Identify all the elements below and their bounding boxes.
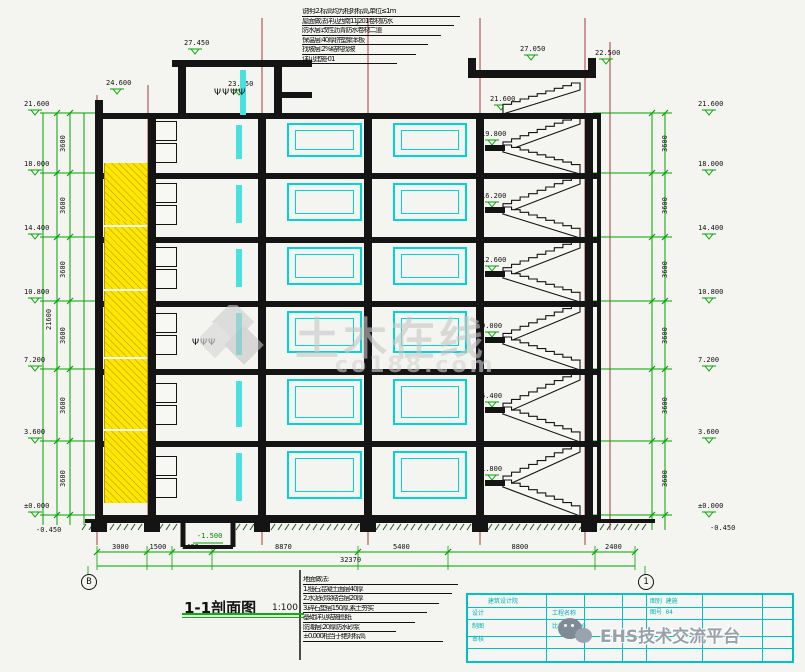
landing-box <box>155 269 177 289</box>
floor-slab <box>95 515 600 523</box>
parapet-left <box>95 100 103 115</box>
titleblock-line <box>546 595 547 661</box>
wall-window-strip <box>236 249 242 287</box>
elevation-left: ±0.000 <box>24 503 49 510</box>
elevation-marker-icon <box>702 110 716 115</box>
foundation <box>91 523 107 532</box>
elevation-marker-icon <box>524 55 538 60</box>
elevation-marker-icon <box>702 438 716 443</box>
icon-eye <box>571 624 574 627</box>
floor-slab <box>95 301 600 307</box>
ground-hatch <box>390 524 394 530</box>
ground-hatch <box>334 524 338 530</box>
ground-hatch <box>271 524 275 530</box>
dim-bottom-total: 32370 <box>340 557 361 564</box>
stair-shaft-highlight <box>104 431 148 503</box>
stair-shaft-highlight <box>104 163 148 221</box>
elevation-left: 7.200 <box>24 357 45 364</box>
ground-hatch <box>327 524 331 530</box>
landing-box <box>155 405 177 425</box>
elevation-left-below: -0.450 <box>36 527 61 534</box>
floor-slab <box>95 113 600 119</box>
elevation-stair-landing: 19.800 <box>481 131 506 138</box>
dim-floor-height: 3600 <box>60 470 67 487</box>
elevation-marker-icon <box>28 512 42 517</box>
ground-hatch <box>376 524 380 530</box>
ground-hatch <box>516 524 520 530</box>
stair-flight <box>503 145 580 174</box>
landing-box <box>155 383 177 403</box>
note-line: 详见建施-01 <box>302 56 397 65</box>
ground-hatch <box>558 524 562 530</box>
landing-box <box>155 143 177 163</box>
ground-hatch <box>292 524 296 530</box>
note-line: 保温层:40厚挤塑聚苯板 <box>302 37 428 46</box>
note-line: 说明:2.标高均为相对标高,单位≤1m <box>302 8 460 17</box>
ground-hatch <box>488 524 492 530</box>
window-inner <box>295 458 354 492</box>
landing-box <box>155 313 177 333</box>
note-line: 1.细石混凝土面层40厚 <box>303 586 452 595</box>
elevation-marker-icon <box>28 298 42 303</box>
elevation-marker-icon <box>188 49 202 54</box>
landing-box <box>155 456 177 476</box>
stair-landing <box>485 407 505 413</box>
foundation <box>144 523 160 532</box>
figure-symbols: ΨΨΨ <box>192 338 216 348</box>
icon-eye <box>564 624 567 627</box>
elevation-stair-landing: 12.600 <box>481 257 506 264</box>
landing-box <box>155 183 177 203</box>
landing-box <box>155 247 177 267</box>
column <box>476 113 484 523</box>
window <box>393 123 467 157</box>
titleblock-firm: 建筑设计院 <box>488 598 518 605</box>
ground-hatch <box>572 524 576 530</box>
bottom-notes-block: 地面做法:1.细石混凝土面层40厚2.水泥砂浆结合层20厚3.碎石垫层150厚,… <box>303 576 458 643</box>
stair-flight <box>503 407 580 442</box>
elevation-marker-icon <box>110 89 124 94</box>
elevation-marker-icon <box>28 170 42 175</box>
ground-hatch <box>236 524 240 530</box>
note-line: 地面做法: <box>303 576 458 585</box>
dim-bottom-value: 8800 <box>512 544 529 551</box>
stair-roof <box>468 70 596 78</box>
window-inner <box>401 458 459 492</box>
penthouse-wall <box>274 67 282 115</box>
window <box>287 451 362 499</box>
ground-hatch <box>166 524 170 530</box>
window-inner <box>295 386 354 418</box>
foundation <box>254 523 270 532</box>
ground-hatch <box>460 524 464 530</box>
ground-hatch <box>530 524 534 530</box>
elevation-left: 10.800 <box>24 289 49 296</box>
window <box>287 247 362 285</box>
dim-bottom-value: 1500 <box>150 544 167 551</box>
note-line: 防潮层:20厚防水砂浆 <box>303 624 396 633</box>
elevation-right: 7.200 <box>698 357 719 364</box>
dim-bottom-value: 8870 <box>275 544 292 551</box>
titleblock-sheet: 图别 建施 <box>650 598 678 605</box>
stair-flight <box>503 117 580 152</box>
dim-floor-height: 3600 <box>662 470 669 487</box>
dim-floor-height: 3600 <box>662 397 669 414</box>
stair-shaft-highlight <box>104 227 148 289</box>
stair-parapet <box>588 58 596 78</box>
dim-bottom-value: 3000 <box>112 544 129 551</box>
dim-bottom-value: 5400 <box>393 544 410 551</box>
ground-hatch <box>117 524 121 530</box>
wall-window-strip <box>236 313 242 355</box>
grid-bubble-B: B <box>81 574 97 590</box>
ground-hatch <box>131 524 135 530</box>
elevation-top: 27.050 <box>520 46 545 53</box>
ground-hatch <box>425 524 429 530</box>
window-inner <box>295 190 354 214</box>
stair-shaft-highlight <box>104 359 148 429</box>
stair-landing <box>485 337 505 343</box>
title-underline <box>182 613 304 615</box>
wechat-icon-small <box>575 628 592 643</box>
window-inner <box>401 190 459 214</box>
stair-flight <box>503 480 580 516</box>
elevation-left: 21.600 <box>24 101 49 108</box>
window-inner <box>295 318 354 346</box>
column <box>585 113 593 523</box>
stair-flight <box>503 207 580 238</box>
ground-hatch <box>124 524 128 530</box>
dim-floor-height: 3600 <box>662 327 669 344</box>
elevation-right: 3.600 <box>698 429 719 436</box>
elevation-stair-landing: 1.800 <box>481 466 502 473</box>
elevation-right: 21.600 <box>698 101 723 108</box>
ground-hatch <box>320 524 324 530</box>
elevation-marker-icon <box>599 59 613 64</box>
cad-section-drawing: { "document": { "type": "architectural-s… <box>0 0 805 672</box>
title-underline <box>182 617 304 618</box>
elevation-top: 21.600 <box>490 96 515 103</box>
ground-hatch <box>355 524 359 530</box>
ground-hatch <box>173 524 177 530</box>
ground-hatch <box>418 524 422 530</box>
note-line: 基础详见结施图纸 <box>303 614 415 623</box>
foundation <box>360 523 376 532</box>
wall-window-strip <box>236 453 242 501</box>
column <box>258 113 266 523</box>
elevation-marker-icon <box>28 438 42 443</box>
landing-box <box>155 121 177 141</box>
wall-window-strip <box>236 125 242 159</box>
stair-shaft-highlight <box>104 291 148 357</box>
stair-landing <box>485 207 505 213</box>
elevation-right: 14.400 <box>698 225 723 232</box>
elevation-left: 18.000 <box>24 161 49 168</box>
note-line: 找坡层:2%结构找坡 <box>302 46 416 55</box>
elevation-marker-icon <box>702 512 716 517</box>
ground-hatch <box>432 524 436 530</box>
dim-floor-height: 3600 <box>60 261 67 278</box>
elevation-stair-landing: 5.400 <box>481 393 502 400</box>
stair-flight <box>503 305 580 344</box>
dim-floor-height: 3600 <box>60 135 67 152</box>
ground-hatch <box>614 524 618 530</box>
elevation-top: 24.600 <box>106 80 131 87</box>
titleblock-role: 设计 <box>472 610 484 617</box>
window <box>393 451 467 499</box>
top-notes-block: 说明:2.标高均为相对标高,单位≤1m屋面做法详见西南11J201卷材防水防水层… <box>302 8 460 65</box>
ground-hatch <box>404 524 408 530</box>
landing-box <box>155 335 177 355</box>
brand-text: EHS技术交流平台 <box>600 622 740 647</box>
ground-hatch <box>565 524 569 530</box>
column <box>364 113 372 523</box>
ground-hatch <box>110 524 114 530</box>
elevation-top: 27.450 <box>184 40 209 47</box>
stair-flight <box>503 445 580 487</box>
window <box>393 183 467 221</box>
penthouse-wall <box>178 67 186 115</box>
penthouse-roof <box>172 60 312 67</box>
window-inner <box>295 130 354 150</box>
window <box>287 311 362 353</box>
ground-hatch <box>523 524 527 530</box>
elevation-stair-landing: 16.200 <box>481 193 506 200</box>
titleblock-line <box>468 619 792 620</box>
figure-symbols: ΨΨΨΨ <box>214 88 246 98</box>
window <box>287 379 362 425</box>
ground-hatch <box>600 524 604 530</box>
stair-parapet <box>468 58 476 78</box>
ground-hatch <box>544 524 548 530</box>
elevation-marker-icon <box>702 234 716 239</box>
elevation-marker-icon <box>28 366 42 371</box>
ground-hatch <box>299 524 303 530</box>
ground-hatch <box>383 524 387 530</box>
ground-hatch <box>278 524 282 530</box>
note-line: ±0.000相当于绝对标高 <box>303 633 443 642</box>
ground-hatch <box>509 524 513 530</box>
floor-slab <box>95 173 600 179</box>
stair-flight <box>503 373 580 414</box>
note-line: 屋面做法详见西南11J201卷材防水 <box>302 18 454 27</box>
titleblock-sheet: 图号 04 <box>650 609 673 616</box>
dim-total-height: 21600 <box>46 309 53 330</box>
elevation-right: 18.000 <box>698 161 723 168</box>
ground-hatch <box>313 524 317 530</box>
floor-slab <box>95 369 600 375</box>
note-line: 防水层:改性沥青防水卷材二道 <box>302 27 441 36</box>
ground-hatch <box>243 524 247 530</box>
stair-flight <box>503 177 580 214</box>
stair-landing <box>485 145 505 151</box>
ground-hatch <box>551 524 555 530</box>
canopy <box>282 92 312 98</box>
ground-hatch <box>495 524 499 530</box>
ground-hatch <box>642 524 646 530</box>
elevation-marker-icon <box>28 110 42 115</box>
window-inner <box>401 254 459 278</box>
dim-bottom-value: 2400 <box>182 544 199 551</box>
stair-flight <box>503 271 580 302</box>
ground-hatch <box>439 524 443 530</box>
ground-hatch <box>285 524 289 530</box>
dim-floor-height: 3600 <box>60 197 67 214</box>
window-inner <box>295 254 354 278</box>
note-line: 2.水泥砂浆结合层20厚 <box>303 595 439 604</box>
elevation-left: 3.600 <box>24 429 45 436</box>
dim-floor-height: 3600 <box>60 397 67 414</box>
landing-box <box>155 478 177 498</box>
titleblock-project: 工程名称 <box>552 610 576 617</box>
dim-floor-height: 3600 <box>662 135 669 152</box>
ground-hatch <box>502 524 506 530</box>
outer-wall-right <box>597 113 601 523</box>
floor-slab <box>95 237 600 243</box>
pit-elevation: -1.500 <box>197 533 222 540</box>
elevation-marker-icon <box>702 170 716 175</box>
dim-bottom-value: 2400 <box>605 544 622 551</box>
ground-hatch <box>348 524 352 530</box>
wall-window-strip <box>236 381 242 427</box>
elevation-marker-icon <box>28 234 42 239</box>
window <box>393 311 467 353</box>
elevation-top: 22.500 <box>595 50 620 57</box>
titleblock-role: 审核 <box>472 636 484 643</box>
section-scale: 1:100 <box>272 603 298 613</box>
ground-hatch <box>635 524 639 530</box>
dim-floor-height: 3600 <box>662 197 669 214</box>
note-line: 3.碎石垫层150厚,素土夯实 <box>303 605 427 614</box>
elevation-right: ±0.000 <box>698 503 723 510</box>
titleblock-line <box>468 648 792 649</box>
stair-flight <box>503 241 580 278</box>
ground-hatch <box>411 524 415 530</box>
ground-hatch <box>341 524 345 530</box>
elevation-left: 14.400 <box>24 225 49 232</box>
elevation-right-below: -0.450 <box>710 525 735 532</box>
stair-flight <box>503 337 580 370</box>
column <box>95 113 103 523</box>
ground-hatch <box>446 524 450 530</box>
window-inner <box>401 130 459 150</box>
ground-hatch <box>453 524 457 530</box>
window-inner <box>401 386 459 418</box>
stair-landing <box>485 271 505 277</box>
elevation-right: 10.800 <box>698 289 723 296</box>
titleblock-line <box>468 607 792 608</box>
titleblock-role: 制图 <box>472 623 484 630</box>
dim-floor-height: 3600 <box>662 261 669 278</box>
dim-floor-height: 3600 <box>60 327 67 344</box>
elevation-marker-icon <box>702 298 716 303</box>
elevation-marker-icon <box>702 366 716 371</box>
wall-window-strip <box>236 185 242 223</box>
ground-hatch <box>537 524 541 530</box>
ground-hatch <box>397 524 401 530</box>
ground-hatch <box>306 524 310 530</box>
foundation <box>581 523 597 532</box>
grid-bubble-1: 1 <box>638 574 654 590</box>
stair-landing <box>485 480 505 486</box>
window <box>393 247 467 285</box>
landing-box <box>155 205 177 225</box>
ground-hatch <box>467 524 471 530</box>
window <box>287 183 362 221</box>
ground-hatch <box>621 524 625 530</box>
elevation-stair-landing: 9.000 <box>481 323 502 330</box>
window <box>287 123 362 157</box>
floor-slab <box>95 441 600 447</box>
window-inner <box>401 318 459 346</box>
titleblock-line <box>762 595 763 661</box>
ground-hatch <box>138 524 142 530</box>
foundation <box>472 523 488 532</box>
ground-hatch <box>628 524 632 530</box>
window <box>393 379 467 425</box>
